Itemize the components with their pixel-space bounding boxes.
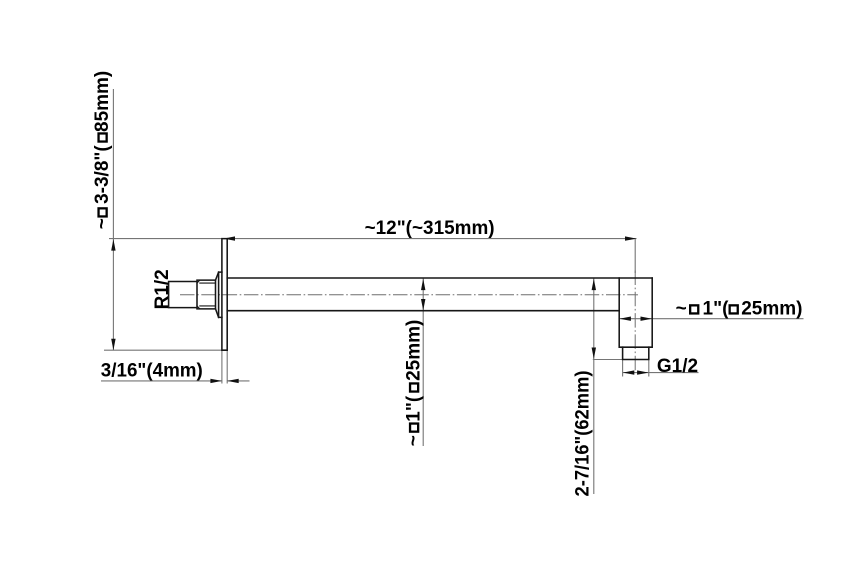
svg-text:R1/2: R1/2 [152,269,173,309]
svg-text:3-3/8"(: 3-3/8"( [92,145,113,204]
svg-text:~: ~ [403,435,424,446]
svg-text:1"(: 1"( [403,395,424,422]
svg-text:G1/2: G1/2 [657,356,698,377]
svg-text:~: ~ [676,298,687,319]
svg-text:1"(: 1"( [703,298,730,319]
svg-text:~12"(~315mm): ~12"(~315mm) [365,218,495,239]
svg-text:25mm): 25mm) [741,298,802,319]
svg-text:~: ~ [92,218,113,229]
svg-text:2-7/16"(62mm): 2-7/16"(62mm) [572,371,593,497]
svg-text:85mm): 85mm) [92,71,113,132]
svg-text:3/16"(4mm): 3/16"(4mm) [101,361,203,382]
svg-text:25mm): 25mm) [403,320,424,381]
